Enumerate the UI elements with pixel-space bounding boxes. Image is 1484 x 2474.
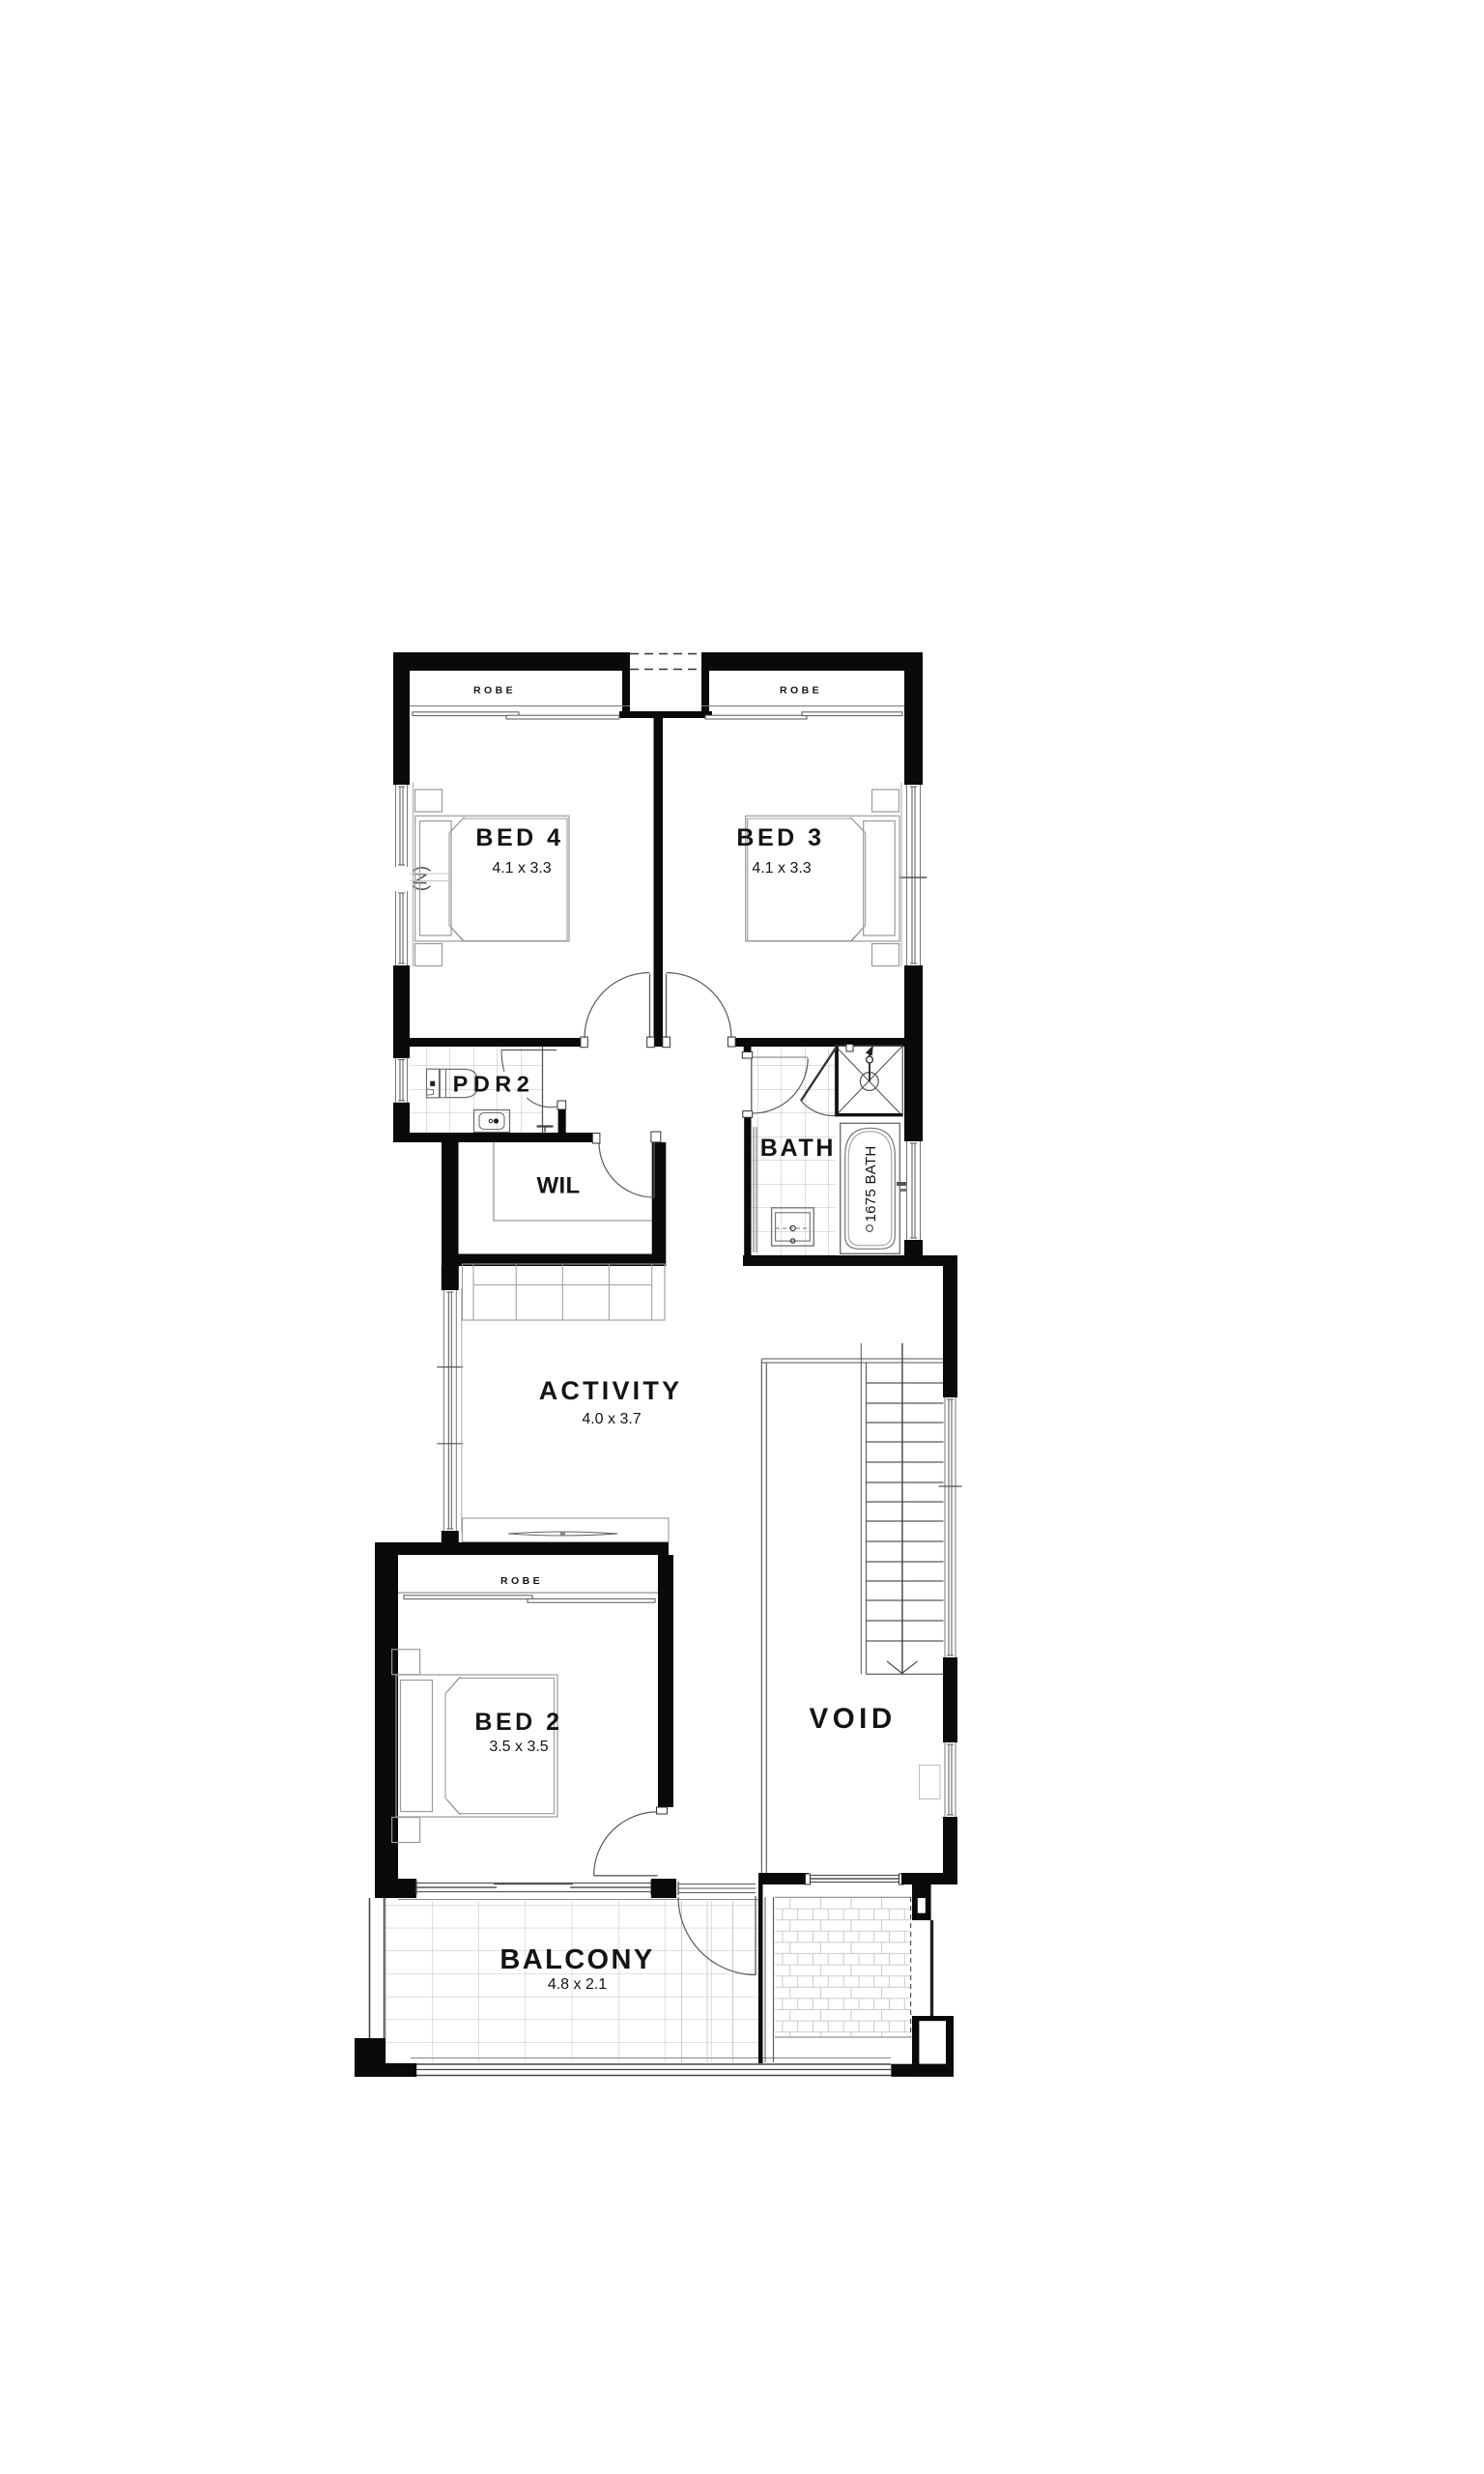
svg-text:1675 BATH: 1675 BATH [863,1145,879,1222]
svg-text:(N): (N) [412,866,432,891]
svg-text:ACTIVITY: ACTIVITY [539,1376,683,1405]
svg-text:PDR2: PDR2 [453,1072,535,1097]
svg-text:4.1 x 3.3: 4.1 x 3.3 [492,860,551,877]
svg-text:BED 2: BED 2 [474,1709,562,1736]
svg-text:BALCONY: BALCONY [499,1944,654,1975]
svg-text:VOID: VOID [810,1703,897,1735]
svg-text:ROBE: ROBE [473,685,516,697]
svg-text:BATH: BATH [760,1135,836,1162]
svg-text:4.8 x 2.1: 4.8 x 2.1 [548,1976,607,1993]
svg-text:4.0 x 3.7: 4.0 x 3.7 [582,1411,641,1427]
svg-text:3.5 x 3.5: 3.5 x 3.5 [489,1739,548,1755]
svg-text:ROBE: ROBE [780,685,822,697]
svg-text:WIL: WIL [537,1173,581,1199]
svg-text:ROBE: ROBE [500,1575,543,1587]
svg-text:4.1 x 3.3: 4.1 x 3.3 [752,860,811,877]
svg-text:BED 3: BED 3 [736,824,824,851]
svg-text:BED 4: BED 4 [475,824,563,851]
